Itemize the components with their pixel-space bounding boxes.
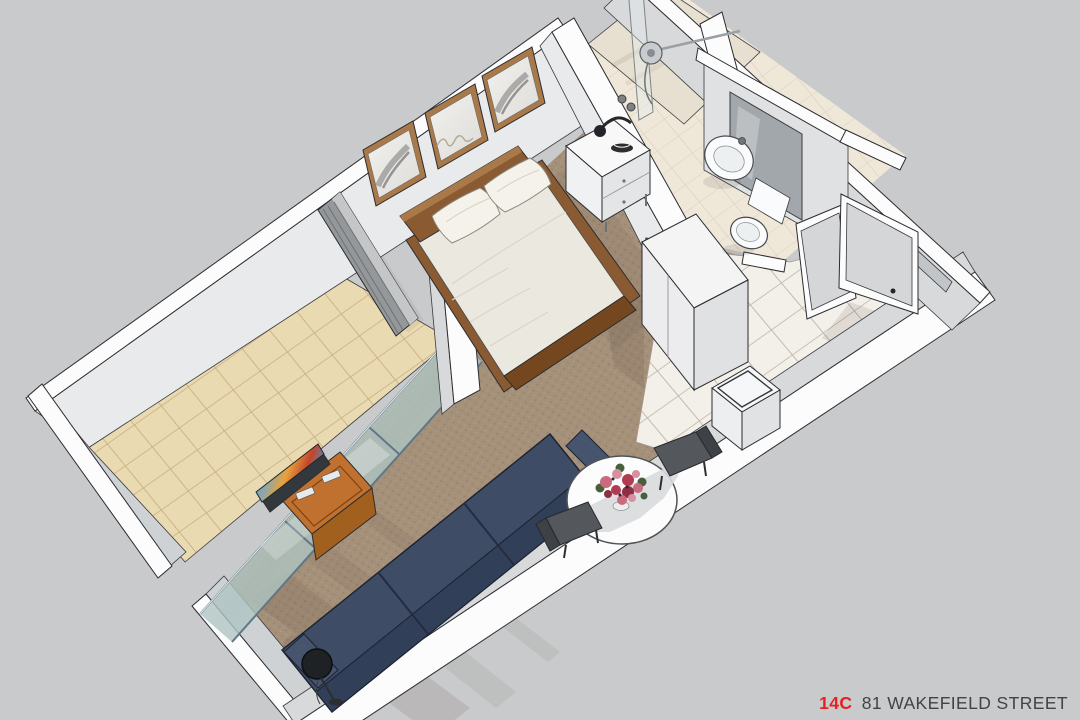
sink-faucet xyxy=(739,138,746,145)
shower-valve xyxy=(627,103,635,111)
unit-number: 14C xyxy=(819,693,852,713)
street-address: 81 WAKEFIELD STREET xyxy=(862,693,1068,713)
door-handle xyxy=(891,289,896,294)
floor-lamp-shade xyxy=(302,649,332,679)
floorplan-page: 14C 81 WAKEFIELD STREET xyxy=(0,0,1080,720)
address-label: 14C 81 WAKEFIELD STREET xyxy=(819,693,1068,713)
shower-valve xyxy=(618,95,626,103)
floorplan-render: 14C 81 WAKEFIELD STREET xyxy=(0,0,1080,720)
